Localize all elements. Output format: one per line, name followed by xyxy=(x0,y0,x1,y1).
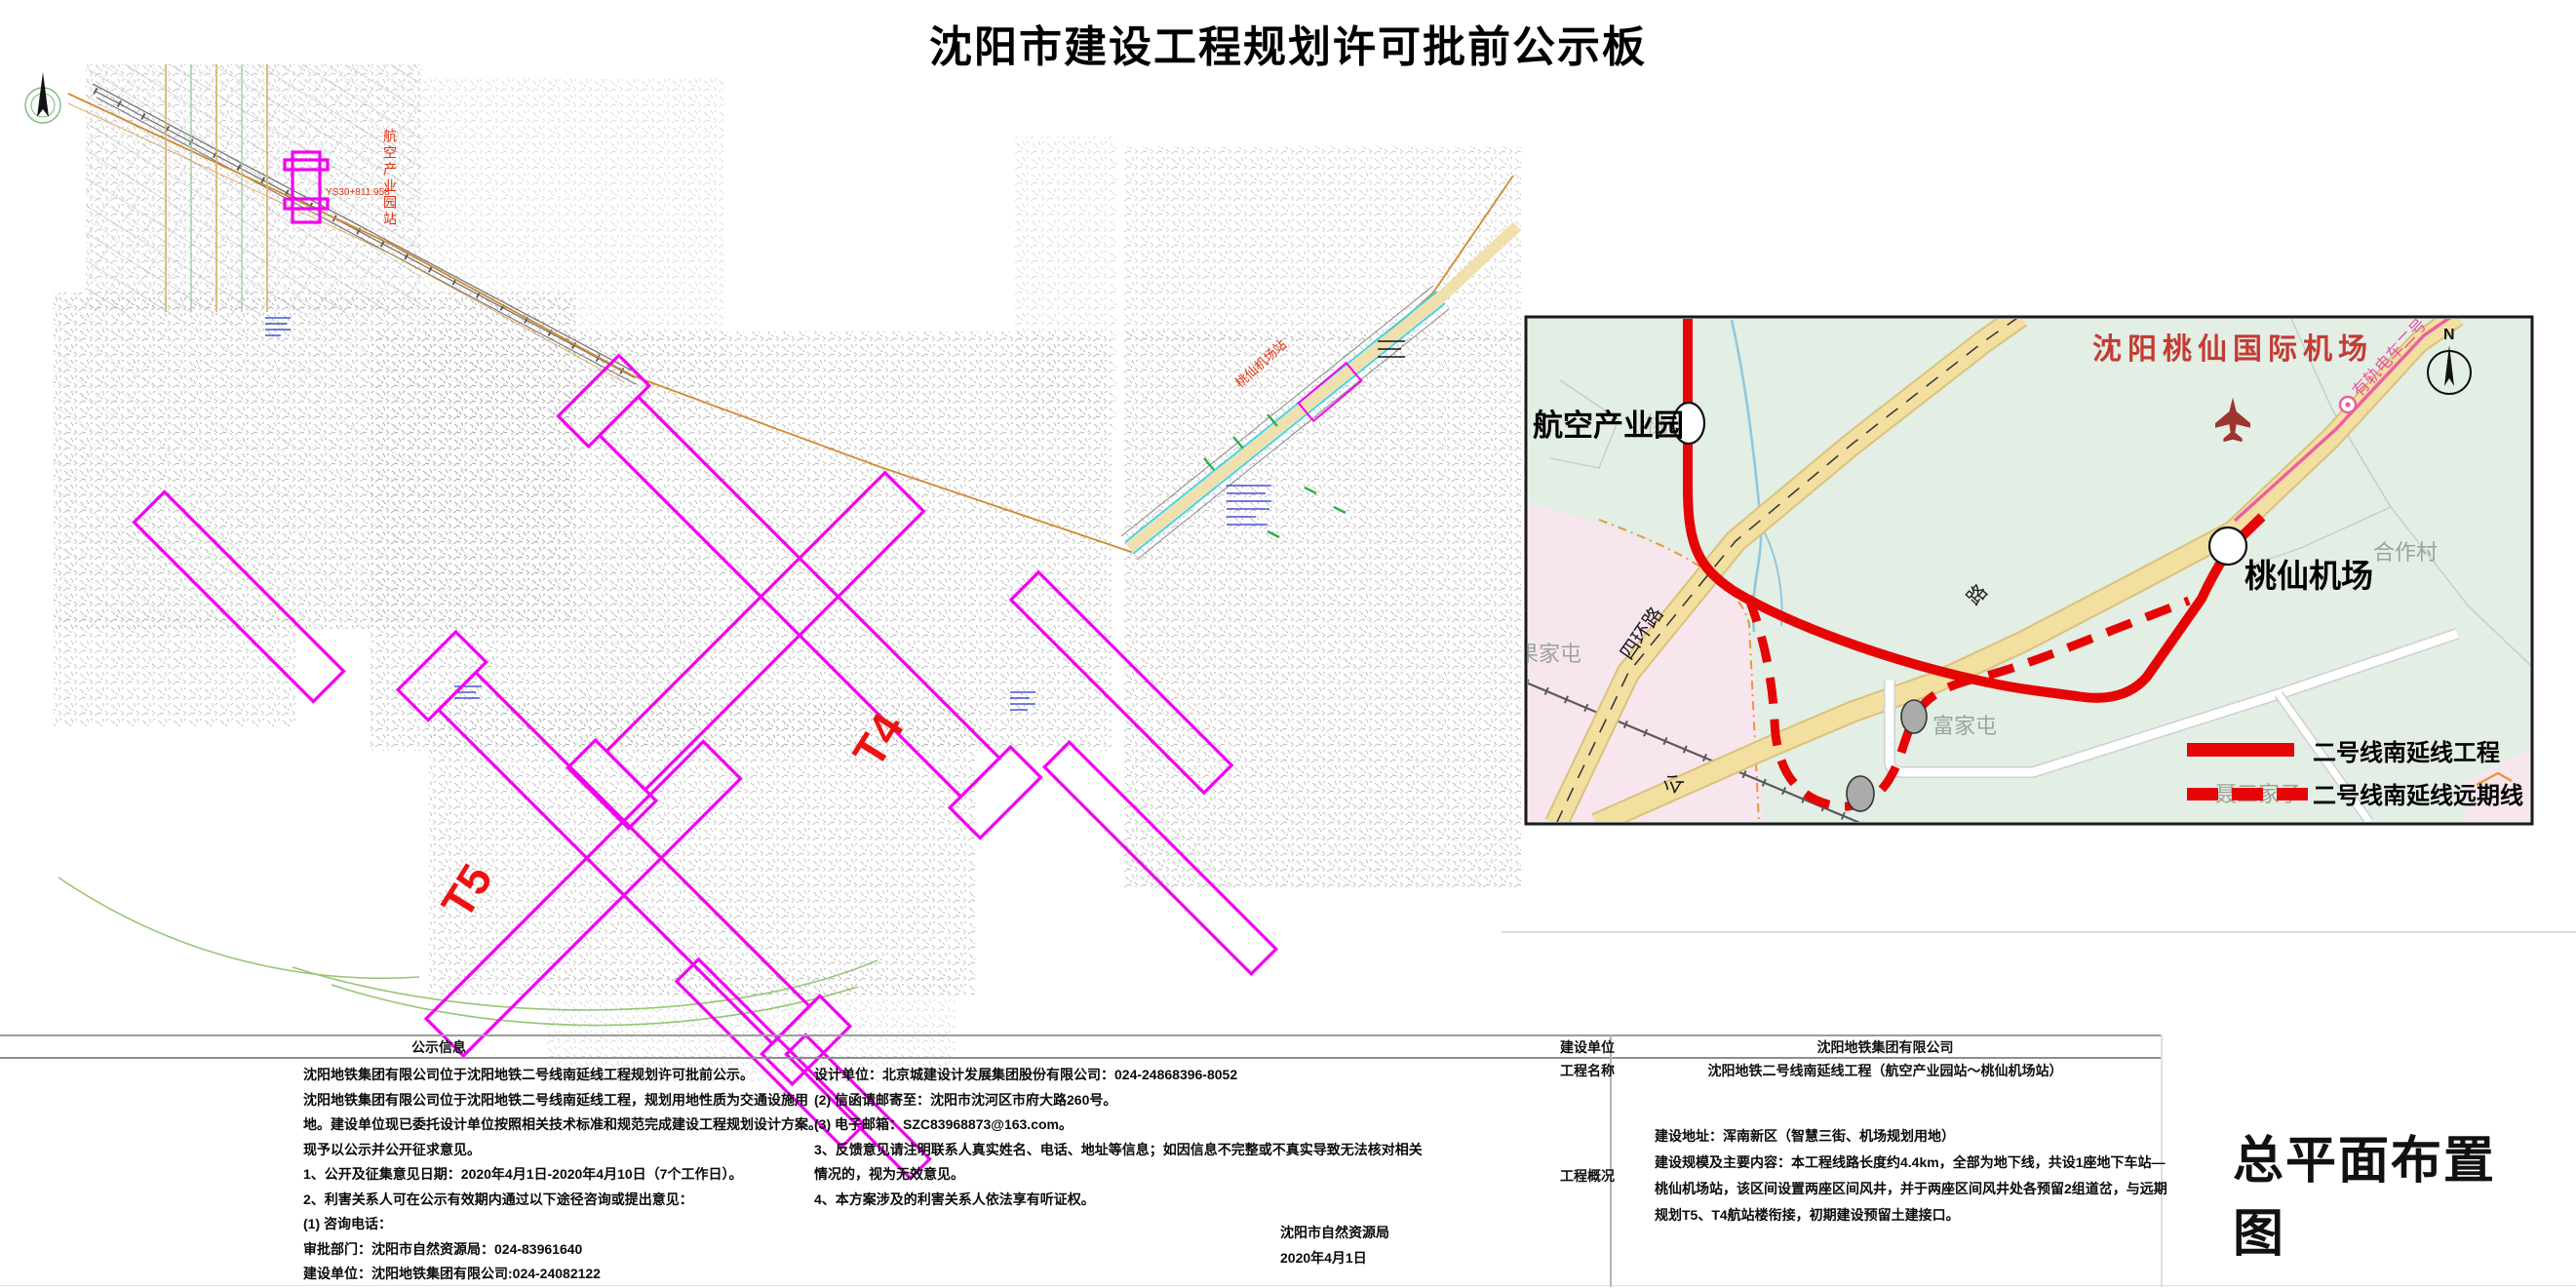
notice-board: 沈阳市建设工程规划许可批前公示板 xyxy=(0,0,2576,1288)
overview-line: 桃仙机场站，该区间设置两座区间风井，并于两座区间风井处各预留2组道岔，与远期 xyxy=(1655,1176,2167,1202)
band-second-rule xyxy=(0,1057,2162,1059)
overview-line: 建设地址：浑南新区（智慧三街、机场规划用地） xyxy=(1655,1123,2167,1150)
airport-title: 沈阳桃仙国际机场 xyxy=(2092,333,2373,366)
notice-line: (3) 电子邮箱：SZC83968873@163.com。 xyxy=(814,1112,1423,1138)
notice-line: 现予以公示并公开征求意见。 xyxy=(303,1138,822,1163)
notice-line: 建设单位：沈阳地铁集团有限公司:024-24082122 xyxy=(303,1262,822,1287)
notice-line: (2) 信函请邮寄至：沈阳市沈河区市府大路260号。 xyxy=(814,1088,1423,1113)
future-station-2 xyxy=(1901,700,1927,733)
plan-north-arrow xyxy=(25,72,60,123)
notice-left-block: 沈阳地铁集团有限公司位于沈阳地铁二号线南延线工程规划许可批前公示。 沈阳地铁集团… xyxy=(303,1063,822,1287)
notice-line: 设计单位：北京城建设计发展集团股份有限公司：024-24868396-8052 xyxy=(814,1063,1423,1088)
notice-line: 沈阳地铁集团有限公司位于沈阳地铁二号线南延线工程规划许可批前公示。 xyxy=(303,1063,822,1088)
village-fujiatun-label: 富家屯 xyxy=(1932,714,1997,738)
notice-header: 公示信息 xyxy=(0,1037,878,1057)
table-row3-label: 工程概况 xyxy=(1541,1166,1634,1186)
notice-line: (1) 咨询电话： xyxy=(303,1212,822,1237)
notice-middle-block: 设计单位：北京城建设计发展集团股份有限公司：024-24868396-8052 … xyxy=(814,1063,1423,1212)
overview-line: 建设规模及主要内容：本工程线路长度约4.4km，全部为地下线，共设1座地下车站— xyxy=(1655,1150,2167,1176)
station-vertical-label: 航空产业园站 xyxy=(382,129,398,228)
notice-line: 沈阳地铁集团有限公司位于沈阳地铁二号线南延线工程，规划用地性质为交通设施用 xyxy=(303,1088,822,1113)
overview-line: 规划T5、T4航站楼衔接，初期建设预留土建接口。 xyxy=(1655,1202,2167,1229)
table-row1-value: 沈阳地铁集团有限公司 xyxy=(1610,1037,2161,1057)
future-station-1 xyxy=(1847,776,1874,811)
station-taoxian-circle xyxy=(2209,527,2246,565)
station-hangkong-label: 航空产业园 xyxy=(1533,409,1684,443)
notice-line: 1、公开及征集意见日期：2020年4月1日-2020年4月10日（7个工作日）。 xyxy=(303,1162,822,1188)
signature-authority: 沈阳市自然资源局 xyxy=(1280,1221,1389,1246)
inset-map: 桃仙 N 沈阳桃仙国际机场 航空产业园 桃仙机场 四环路 路 xyxy=(1517,310,2532,824)
band-top-rule xyxy=(0,1034,2162,1036)
notice-line: 情况的，视为无效意见。 xyxy=(814,1162,1423,1188)
drawing-title: 总平面布置图 xyxy=(2233,1119,2545,1266)
village-hezuo-label: 合作村 xyxy=(2373,540,2438,565)
cad-site-plan: T4 T5 航空产业园站 YS30+811.958 桃仙机场站 xyxy=(25,64,1521,1234)
station-taoxian-label: 桃仙机场 xyxy=(2244,558,2373,594)
compass-n-label: N xyxy=(2443,327,2455,343)
notice-line: 4、本方案涉及的利害关系人依法享有听证权。 xyxy=(814,1188,1423,1213)
chainage-label: YS30+811.958 xyxy=(326,187,390,198)
signature-date: 2020年4月1日 xyxy=(1280,1246,1389,1271)
table-row2-value: 沈阳地铁二号线南延线工程（航空产业园站～桃仙机场站） xyxy=(1610,1061,2161,1080)
signature-block: 沈阳市自然资源局 2020年4月1日 xyxy=(1280,1221,1389,1270)
legend-solid-label: 二号线南延线工程 xyxy=(2313,740,2500,766)
notice-line: 地。建设单位现已委托设计单位按照相关技术标准和规范完成建设工程规划设计方案。 xyxy=(303,1112,822,1138)
notice-line: 3、反馈意见请注明联系人真实姓名、电话、地址等信息；如因信息不完整或不真实导致无… xyxy=(814,1138,1423,1163)
table-row3-value: 建设地址：浑南新区（智慧三街、机场规划用地） 建设规模及主要内容：本工程线路长度… xyxy=(1655,1123,2167,1229)
notice-line: 审批部门：沈阳市自然资源局：024-83961640 xyxy=(303,1237,822,1263)
legend-dashed-label: 二号线南延线远期线 xyxy=(2313,783,2523,809)
topo-fragments xyxy=(54,64,1521,1082)
notice-line: 2、利害关系人可在公示有效期内通过以下途径咨询或提出意见： xyxy=(303,1188,822,1213)
